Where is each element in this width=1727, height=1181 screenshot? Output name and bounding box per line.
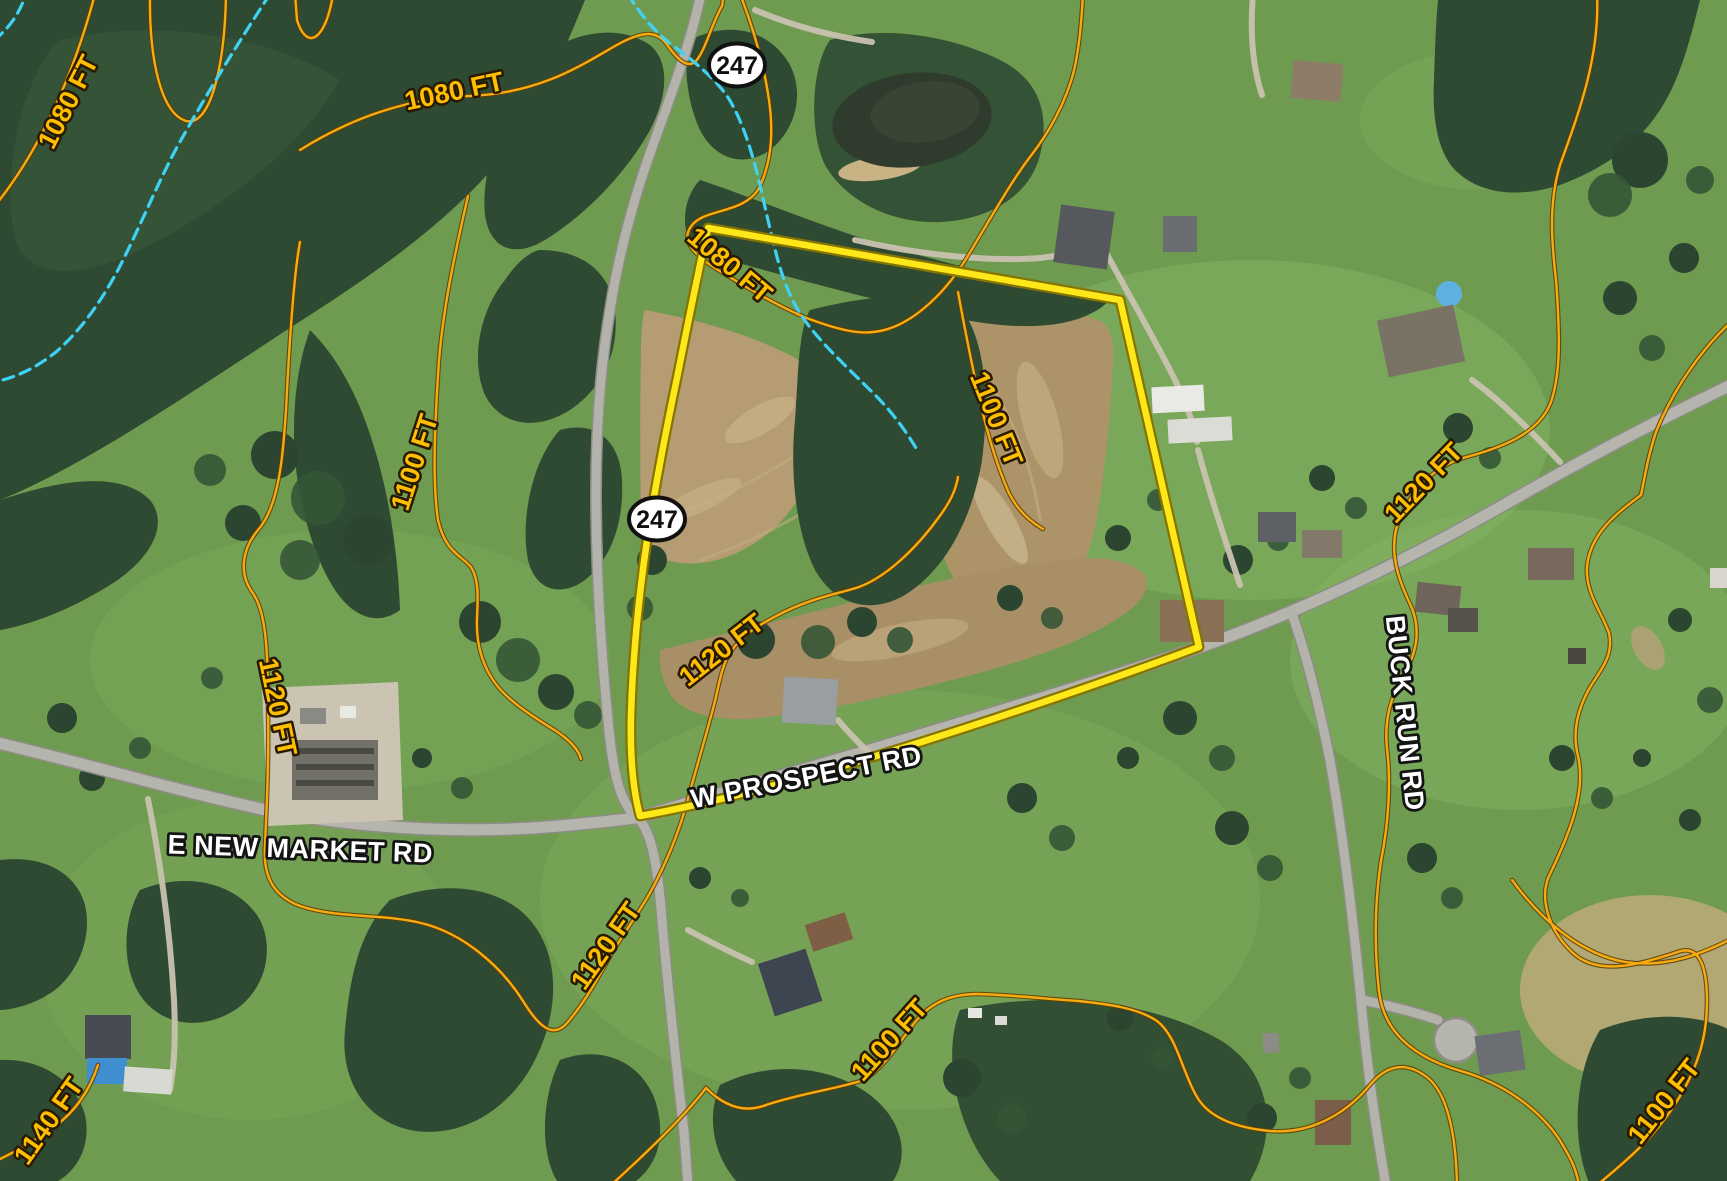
route-number: 247 <box>636 506 678 534</box>
building <box>1474 1030 1525 1076</box>
shed <box>1568 648 1586 664</box>
building <box>1710 568 1727 588</box>
building <box>1258 512 1296 542</box>
building <box>1448 608 1478 632</box>
barn <box>782 677 838 726</box>
route-number: 247 <box>716 52 758 80</box>
pool <box>1436 281 1462 307</box>
building <box>1163 216 1197 252</box>
building <box>1290 60 1343 102</box>
trailer <box>123 1066 173 1094</box>
farm-equipment <box>995 1016 1007 1025</box>
route-shield: 247 <box>709 44 765 87</box>
farm-equipment <box>968 1008 982 1018</box>
route-shield: 247 <box>629 498 685 541</box>
barn <box>1167 416 1232 443</box>
cul-de-sac <box>1434 1018 1478 1062</box>
building <box>1528 548 1574 580</box>
map-canvas[interactable]: 247 247 1080 FT 1080 FT 1080 FT 1100 FT … <box>0 0 1727 1181</box>
building <box>85 1015 131 1059</box>
barn <box>1151 385 1204 414</box>
shed <box>1263 1033 1279 1053</box>
building <box>1053 205 1115 270</box>
aerial-imagery: 247 247 1080 FT 1080 FT 1080 FT 1100 FT … <box>0 0 1727 1181</box>
building <box>1302 530 1342 558</box>
